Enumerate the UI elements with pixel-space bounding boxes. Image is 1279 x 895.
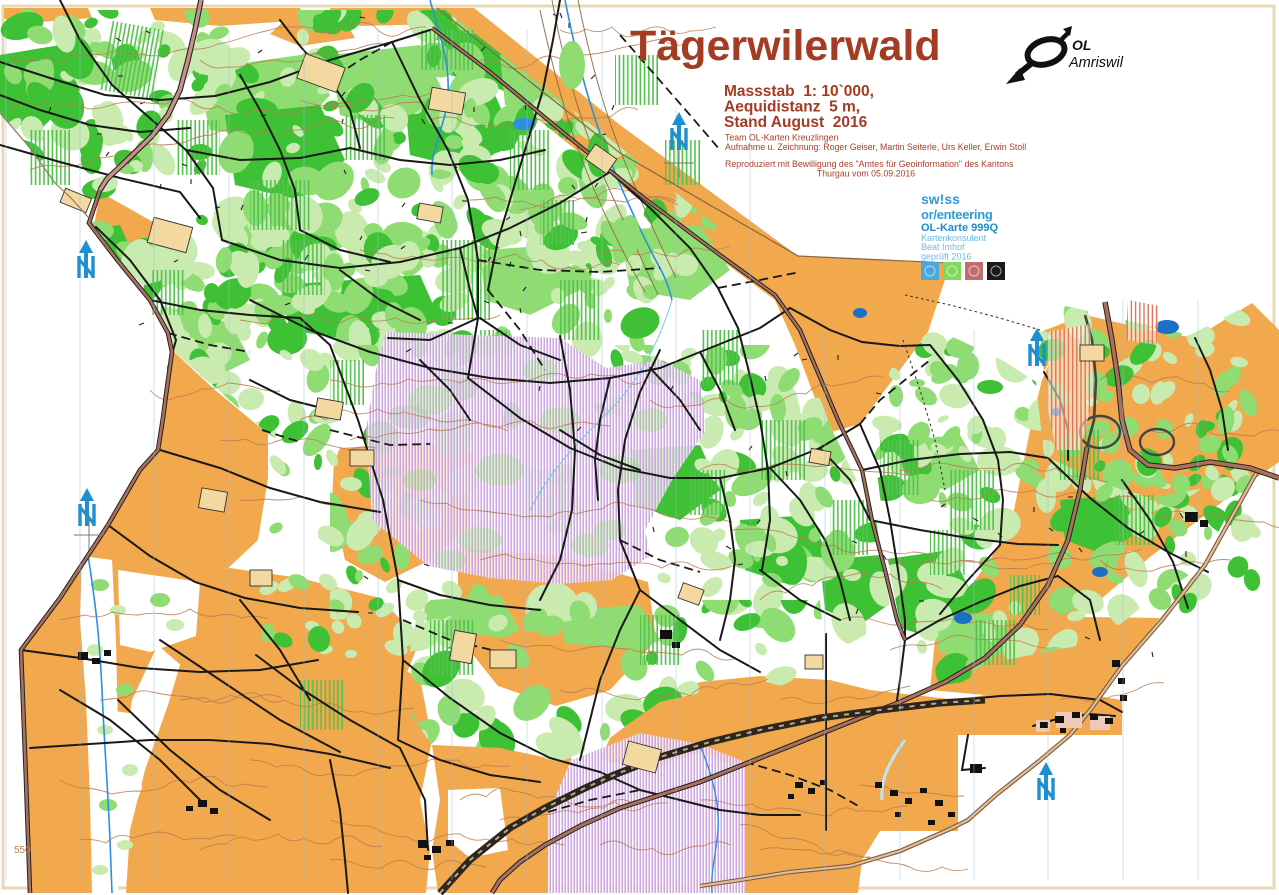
svg-text:Reproduziert mit Bewilligung d: Reproduziert mit Bewilligung des "Amtes … bbox=[725, 159, 1014, 169]
svg-text:Tägerwilerwald: Tägerwilerwald bbox=[630, 22, 941, 70]
svg-text:geprüft 2016: geprüft 2016 bbox=[921, 252, 972, 262]
svg-text:Massstab 1: 10`000,: Massstab 1: 10`000, bbox=[724, 83, 874, 100]
svg-text:Aequidistanz 5 m,: Aequidistanz 5 m, bbox=[724, 99, 860, 116]
svg-text:sw!ss: sw!ss bbox=[921, 191, 960, 207]
svg-text:Amriswil: Amriswil bbox=[1068, 55, 1124, 71]
svg-text:or/enteering: or/enteering bbox=[921, 207, 993, 222]
svg-text:Stand August 2016: Stand August 2016 bbox=[724, 114, 868, 131]
svg-text:Team OL-Karten Kreuzlingen: Team OL-Karten Kreuzlingen bbox=[725, 133, 839, 143]
svg-text:Beat Imhof: Beat Imhof bbox=[921, 242, 965, 252]
svg-text:Thurgau vom 05.09.2016: Thurgau vom 05.09.2016 bbox=[817, 169, 915, 179]
svg-text:Aufnahme u. Zeichnung: Roger: Aufnahme u. Zeichnung: Roger Geiser, Mar… bbox=[725, 142, 1026, 152]
svg-text:550: 550 bbox=[14, 845, 31, 856]
svg-text:OL: OL bbox=[1072, 37, 1091, 53]
